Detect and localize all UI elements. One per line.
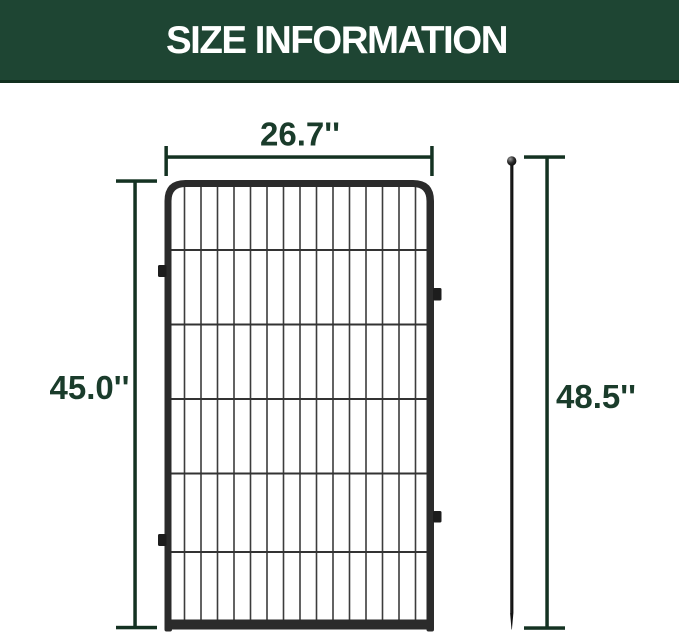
svg-text:48.5'': 48.5'' [556,378,636,415]
svg-text:45.0'': 45.0'' [50,369,130,406]
svg-text:26.7'': 26.7'' [260,116,340,153]
